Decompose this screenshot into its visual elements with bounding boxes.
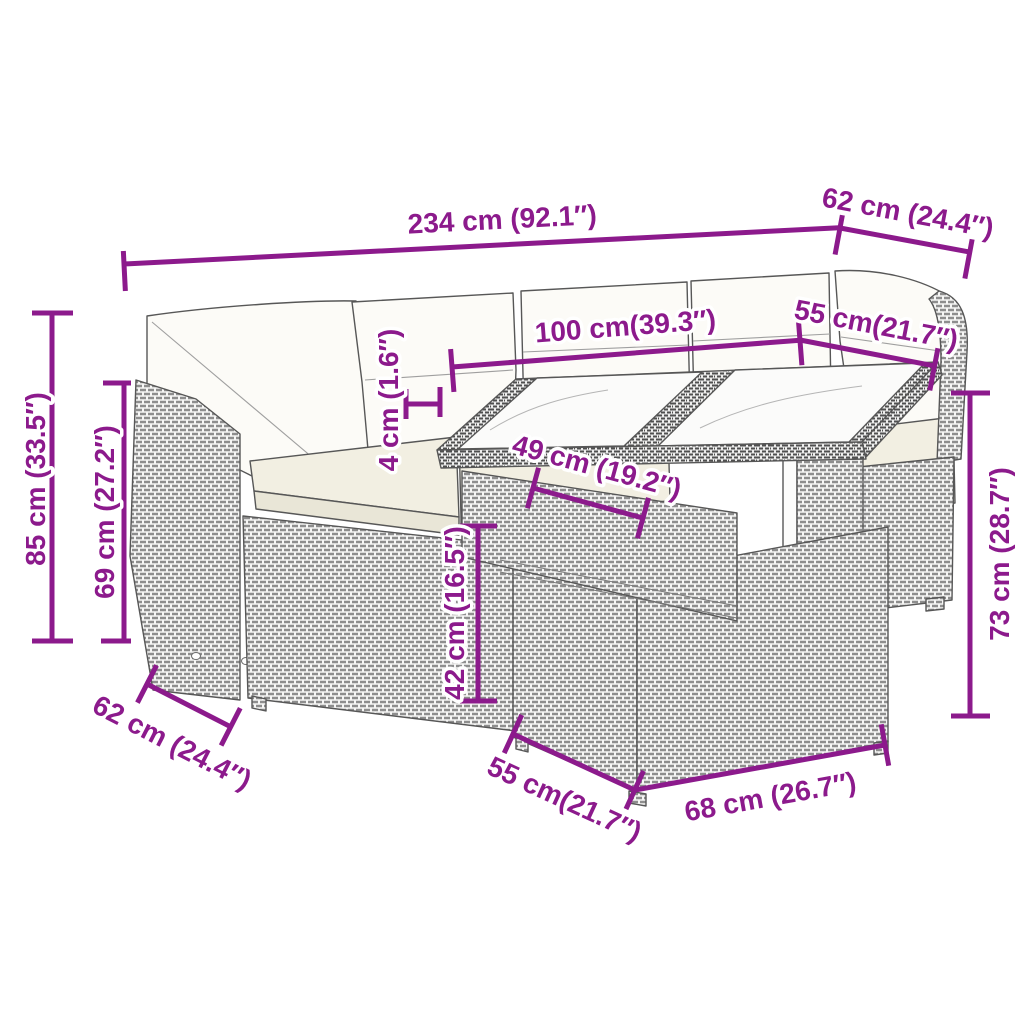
dim-backrest-height: 69 cm (27.2″) [89, 383, 131, 641]
dim-label-backrest-height: 69 cm (27.2″) [89, 425, 120, 599]
left-armrest [130, 380, 251, 700]
dim-top-depth: 62 cm (24.4″) [813, 182, 997, 282]
dim-overall-height: 85 cm (33.5″) [20, 313, 73, 641]
dimension-diagram-svg: 234 cm (92.1″) 62 cm (24.4″) 100 cm(39.3… [0, 0, 1024, 1024]
dim-label-top-depth: 62 cm (24.4″) [820, 182, 996, 244]
dim-label-seat-base-height: 42 cm (16.5″) [439, 526, 470, 700]
dim-label-overall-width: 234 cm (92.1″) [407, 199, 598, 240]
product-dimension-diagram: 234 cm (92.1″) 62 cm (24.4″) 100 cm(39.3… [0, 0, 1024, 1024]
dim-overall-width: 234 cm (92.1″) [122, 187, 841, 291]
dim-label-overall-height: 85 cm (33.5″) [20, 392, 51, 566]
dim-label-seat-module-depth: 62 cm (24.4″) [88, 689, 257, 796]
furniture-illustration [130, 271, 967, 806]
dim-label-table-height: 73 cm (28.7″) [984, 467, 1015, 641]
dim-label-tabletop-thickness: 4 cm (1.6″) [373, 329, 404, 472]
screw-hole [192, 653, 201, 660]
